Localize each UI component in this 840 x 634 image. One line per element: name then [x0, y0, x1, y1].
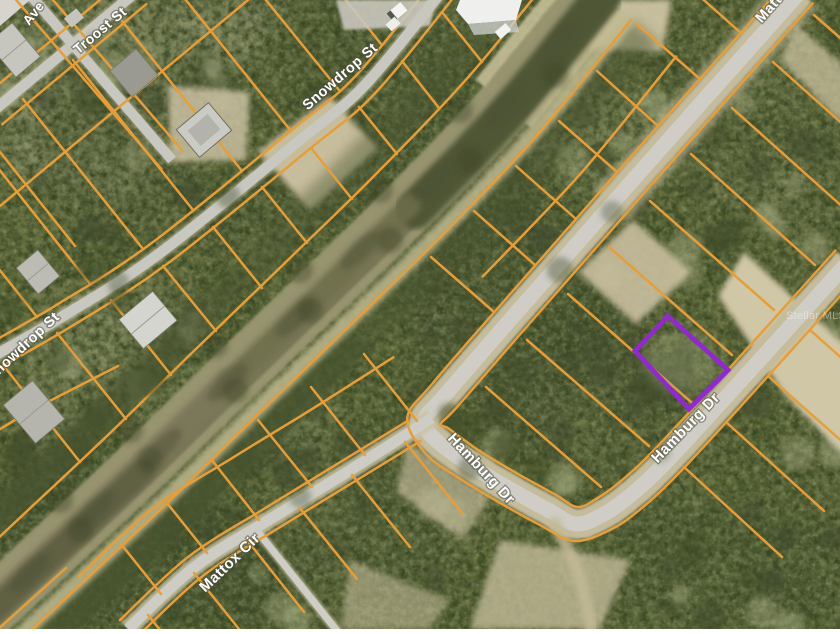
svg-text:Stellar MLS: Stellar MLS — [786, 310, 840, 322]
